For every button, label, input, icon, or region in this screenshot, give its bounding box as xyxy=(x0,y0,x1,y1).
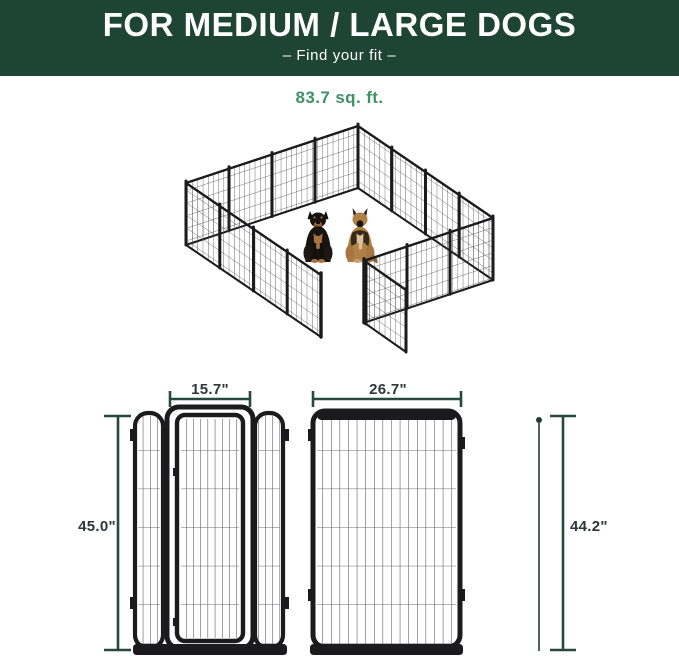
gate-height-label: 45.0" xyxy=(78,518,116,535)
connector-rod xyxy=(536,417,542,651)
panel-base-bar xyxy=(310,644,463,655)
gate-panel-diagram: 45.0" 15.7" xyxy=(78,381,289,655)
panel-width-label: 26.7" xyxy=(369,381,407,398)
door-hinge xyxy=(173,618,178,626)
product-infographic: FOR MEDIUM / LARGE DOGS – Find your fit … xyxy=(0,0,679,656)
rottweiler-figure xyxy=(304,211,333,263)
gate-door-panel xyxy=(167,407,253,648)
playpen-scene: 45.0" 15.7" xyxy=(0,0,679,656)
mounting-tab xyxy=(282,429,289,441)
german-shepherd-figure xyxy=(346,208,378,264)
gate-base-bar xyxy=(133,644,287,655)
isometric-playpen-illustration xyxy=(186,124,493,352)
mounting-tab xyxy=(308,429,315,441)
regular-panel xyxy=(308,411,465,655)
mounting-tab xyxy=(308,589,315,601)
gate-side-panel-right xyxy=(255,413,289,648)
mounting-tab xyxy=(130,429,137,441)
mounting-tab xyxy=(130,597,137,609)
regular-panel-diagram: 26.7" 44.2" xyxy=(308,381,608,655)
gate-width-label: 15.7" xyxy=(191,381,229,398)
door-hinge xyxy=(173,468,178,476)
panel-top-bar xyxy=(317,411,456,420)
mounting-tab xyxy=(458,589,465,601)
mounting-tab xyxy=(282,597,289,609)
panel-height-label: 44.2" xyxy=(570,518,608,535)
mounting-tab xyxy=(458,437,465,449)
gate-side-panel-left xyxy=(130,413,163,648)
